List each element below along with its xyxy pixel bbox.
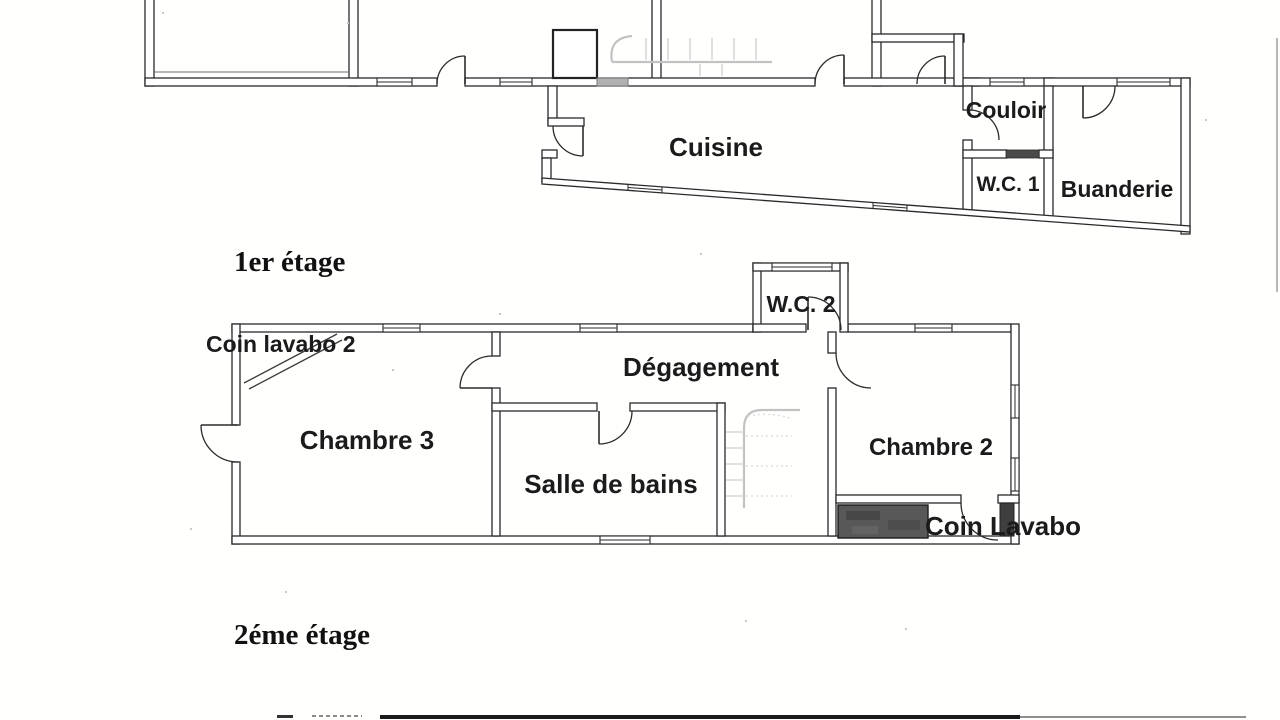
door: [815, 55, 844, 84]
door: [836, 353, 871, 388]
window: [383, 324, 420, 332]
floor-caption-2eme-etage: 2éme étage: [234, 619, 370, 652]
room-label-buanderie: Buanderie: [1061, 176, 1173, 203]
room-label-wc2: W.C. 2: [766, 291, 835, 318]
room-label-coin-lavabo-2: Coin lavabo 2: [206, 331, 356, 358]
first-floor-plan: [201, 263, 1019, 544]
door: [437, 56, 465, 84]
room-label-chambre-2: Chambre 2: [869, 434, 993, 462]
sliding-door-sill: [1006, 150, 1039, 158]
room-label-couloir: Couloir: [966, 97, 1047, 124]
door: [599, 411, 632, 444]
window: [772, 263, 832, 271]
window: [377, 78, 412, 86]
room-label-salle-de-bains: Salle de bains: [524, 469, 697, 500]
window: [1117, 78, 1170, 86]
room-label-degagement: Dégagement: [623, 352, 779, 383]
window: [990, 78, 1024, 86]
window-gray: [597, 78, 628, 86]
room-label-cuisine: Cuisine: [669, 132, 763, 163]
window: [915, 324, 952, 332]
door: [460, 356, 492, 388]
stairs-faint-first: [726, 410, 800, 508]
window: [1011, 385, 1019, 418]
stairs-faint-ground: [611, 36, 772, 76]
window: [600, 536, 650, 544]
second-floor-plan-cutoff: [277, 715, 1246, 719]
floor-caption-1er-etage: 1er étage: [234, 246, 345, 279]
window: [1011, 458, 1019, 491]
room-label-wc1: W.C. 1: [976, 173, 1039, 197]
window: [580, 324, 617, 332]
window: [500, 78, 532, 86]
door: [201, 425, 238, 462]
room-label-chambre-3: Chambre 3: [300, 425, 434, 456]
room-label-coin-lavabo: Coin Lavabo: [925, 511, 1081, 542]
scan-page: Cuisine Couloir W.C. 1 Buanderie 1er éta…: [0, 0, 1280, 720]
lavabo-shaded-block: [838, 505, 928, 538]
door: [1083, 86, 1115, 118]
